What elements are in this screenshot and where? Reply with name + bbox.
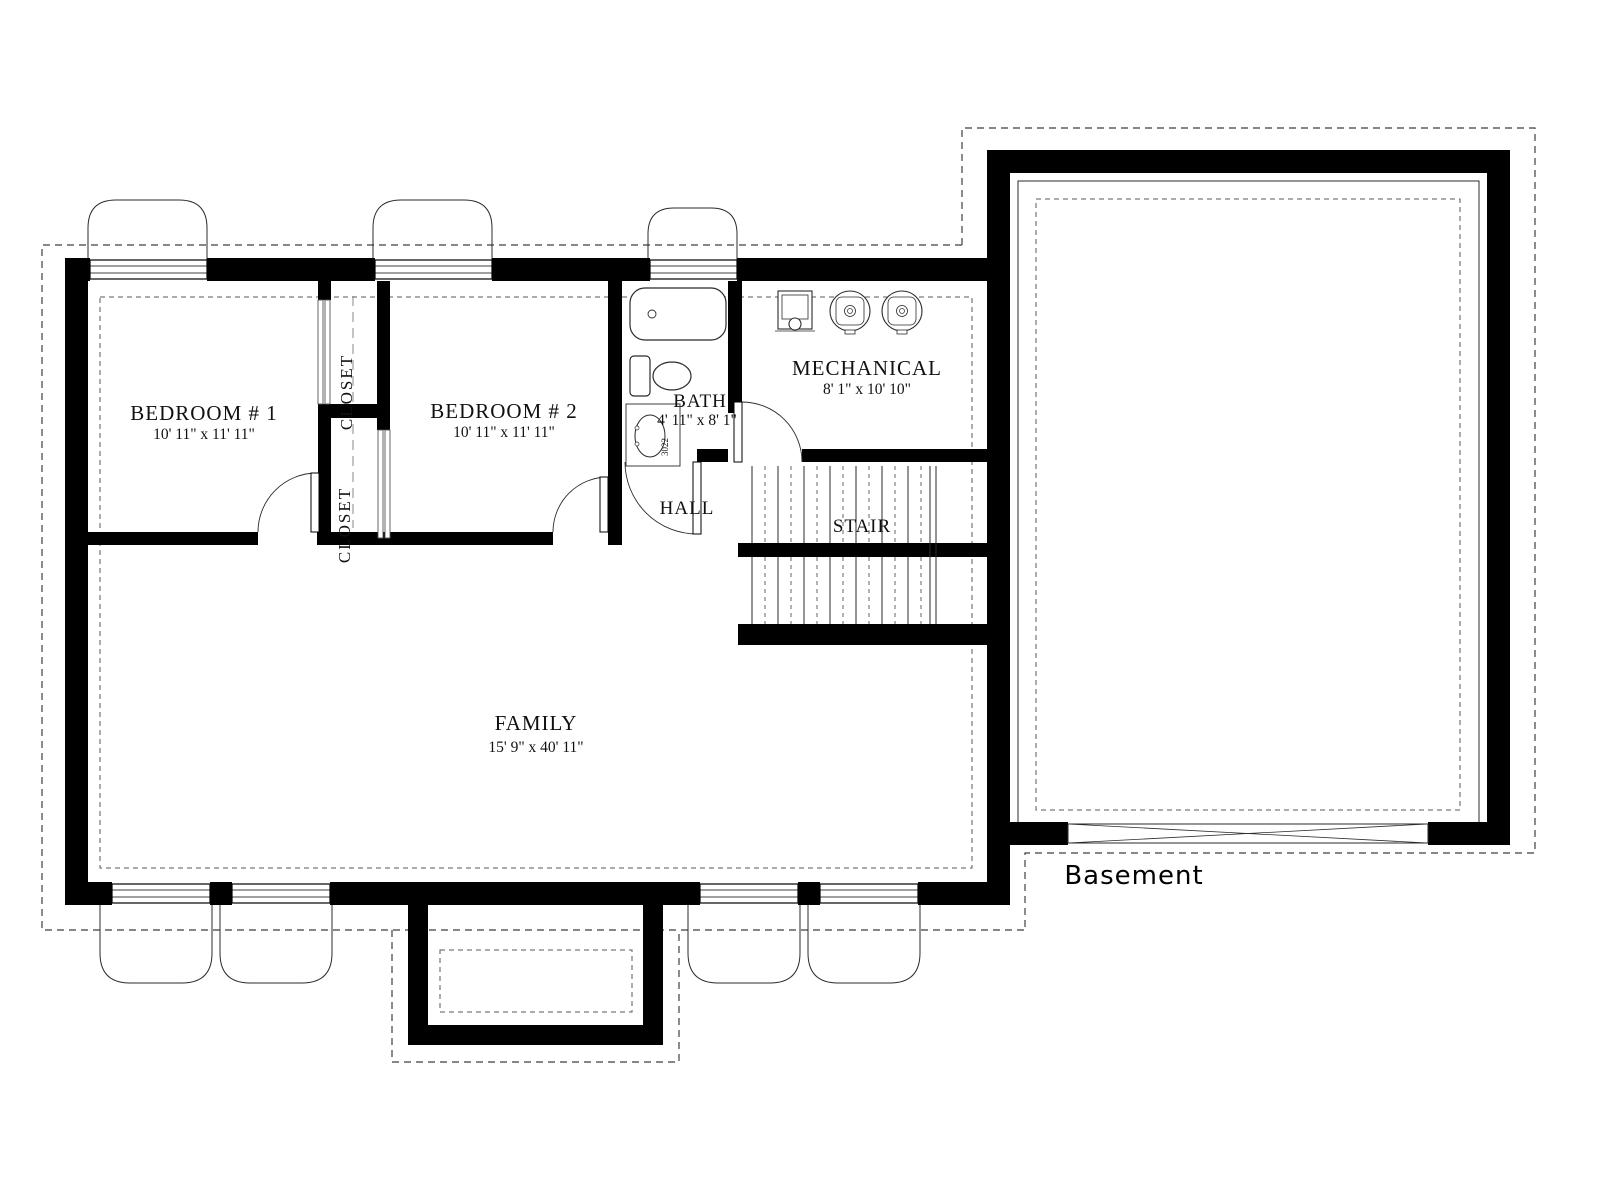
stair-label: STAIR <box>833 516 891 537</box>
closet-lower-label: CLOSET <box>335 487 354 563</box>
mechanical-fixtures <box>775 291 922 334</box>
water-heater-icon <box>882 291 922 334</box>
vanity-code-label: 3022 <box>660 438 670 456</box>
bedroom2-door <box>553 477 608 532</box>
window-well <box>808 903 920 983</box>
garage-interior-inset <box>1036 199 1460 810</box>
bedroom2-dims: 10' 11" x 11' 11" <box>453 424 555 441</box>
window <box>112 884 210 903</box>
areaway-walls <box>408 905 663 1045</box>
hall-label: HALL <box>660 498 715 519</box>
window-well <box>373 200 492 266</box>
floor-plan-sheet: 3022 BEDROOM # 1 10' 11" x 11' 11" <box>0 0 1600 1200</box>
bedroom1-label: BEDROOM # 1 <box>130 401 278 425</box>
bedroom1-dims: 10' 11" x 11' 11" <box>153 426 255 443</box>
toilet-icon <box>630 356 691 396</box>
window <box>232 884 330 903</box>
window <box>90 260 207 279</box>
family-dims: 15' 9" x 40' 11" <box>488 739 583 756</box>
window-well <box>100 903 212 983</box>
furnace-icon <box>775 291 815 331</box>
window-well <box>688 903 800 983</box>
closet-upper-label: CLOSET <box>337 354 356 430</box>
plan-title: Basement <box>1064 861 1203 891</box>
areaway-interior-inset <box>440 950 632 1012</box>
bath-dims: 4' 11" x 8' 1" <box>657 412 737 429</box>
floor-plan-drawing: 3022 BEDROOM # 1 10' 11" x 11' 11" <box>0 0 1600 1200</box>
mechanical-dims: 8' 1" x 10' 10" <box>823 381 911 398</box>
garage-walls <box>987 150 1510 845</box>
stair-lower-run <box>752 557 921 624</box>
window <box>375 260 492 279</box>
mechanical-label: MECHANICAL <box>792 356 942 380</box>
bath-fixtures: 3022 <box>626 288 726 466</box>
garage-wall-inner-line <box>1018 181 1479 837</box>
window-well <box>220 903 332 983</box>
door-leaf <box>734 402 742 462</box>
main-footing-outline <box>42 245 1025 930</box>
water-heater-icon <box>830 291 870 334</box>
door-leaf <box>600 477 608 532</box>
interior-walls <box>78 281 987 645</box>
family-label: FAMILY <box>495 711 578 735</box>
bedroom2-label: BEDROOM # 2 <box>430 399 578 423</box>
bedroom1-door <box>258 473 319 532</box>
garage-door <box>1068 824 1428 843</box>
mechanical-door <box>734 402 802 462</box>
door-leaf <box>311 473 319 532</box>
window <box>820 884 918 903</box>
window-well <box>648 208 737 266</box>
bath-label: BATH <box>673 391 727 412</box>
bathtub-icon <box>630 288 726 340</box>
window <box>650 260 737 279</box>
window <box>700 884 798 903</box>
window-well <box>88 200 207 266</box>
